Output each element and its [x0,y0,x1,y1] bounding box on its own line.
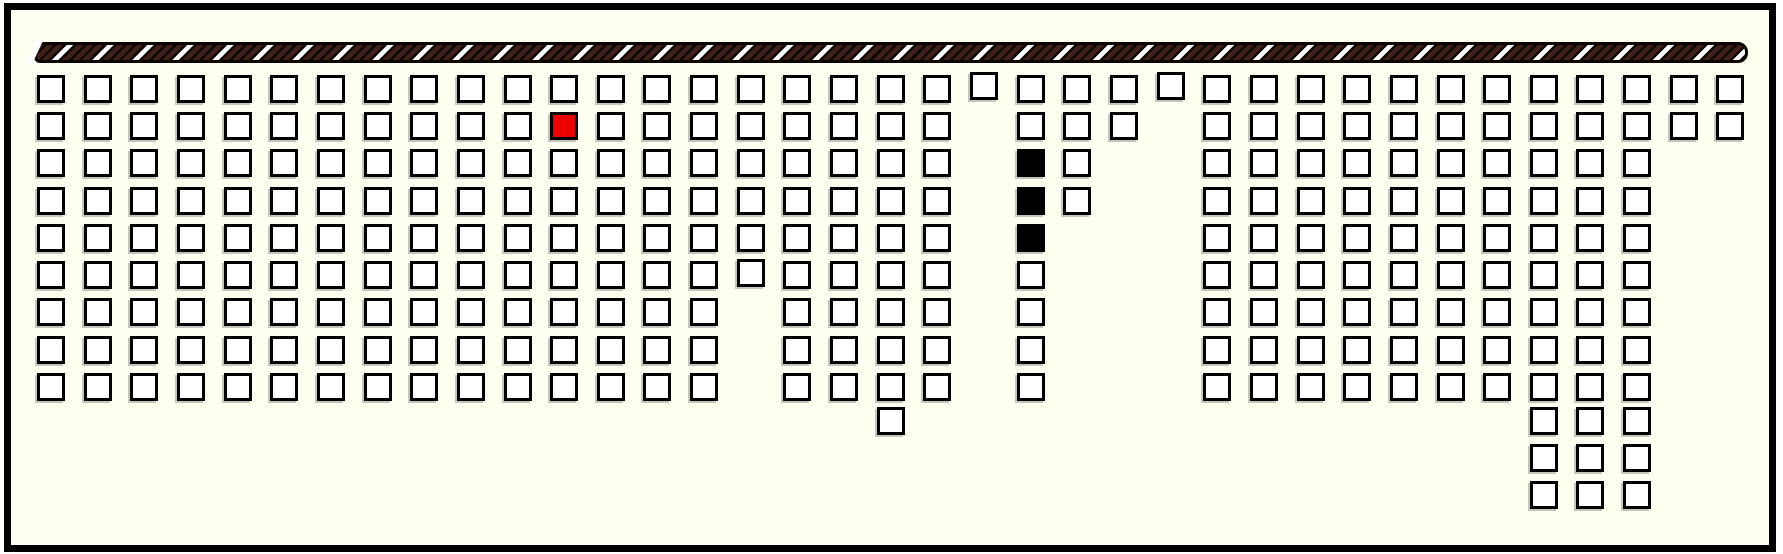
slot-r9-c11[interactable] [504,373,532,401]
slot-r10-c19[interactable] [877,407,905,435]
slot-r4-c33[interactable] [1530,187,1558,215]
slot-r8-c3[interactable] [130,336,158,364]
slot-occupied-r3-c22[interactable] [1017,149,1045,177]
slot-r1-c32[interactable] [1483,75,1511,103]
slot-r9-c6[interactable] [270,373,298,401]
slot-r8-c33[interactable] [1530,336,1558,364]
slot-r9-c14[interactable] [643,373,671,401]
slot-r5-c14[interactable] [643,224,671,252]
slot-r1-c2[interactable] [84,75,112,103]
slot-r8-c1[interactable] [37,336,65,364]
slot-r5-c15[interactable] [690,224,718,252]
slot-r4-c9[interactable] [410,187,438,215]
slot-r6-c7[interactable] [317,261,345,289]
slot-r5-c11[interactable] [504,224,532,252]
slot-r6-c17[interactable] [783,261,811,289]
slot-r9-c32[interactable] [1483,373,1511,401]
slot-r9-c33[interactable] [1530,373,1558,401]
slot-r7-c2[interactable] [84,298,112,326]
slot-r4-c17[interactable] [783,187,811,215]
slot-r4-c35[interactable] [1623,187,1651,215]
slot-r1-c34[interactable] [1576,75,1604,103]
slot-r4-c14[interactable] [643,187,671,215]
slot-r4-c19[interactable] [877,187,905,215]
slot-r6-c15[interactable] [690,261,718,289]
slot-r5-c18[interactable] [830,224,858,252]
slot-r8-c29[interactable] [1343,336,1371,364]
slot-r8-c6[interactable] [270,336,298,364]
slot-r1-c28[interactable] [1297,75,1325,103]
slot-r5-c32[interactable] [1483,224,1511,252]
slot-r4-c7[interactable] [317,187,345,215]
slot-r8-c14[interactable] [643,336,671,364]
slot-r5-c20[interactable] [923,224,951,252]
slot-r12-c34[interactable] [1576,481,1604,509]
slot-r4-c10[interactable] [457,187,485,215]
slot-r4-c12[interactable] [550,187,578,215]
slot-r7-c10[interactable] [457,298,485,326]
slot-r3-c29[interactable] [1343,149,1371,177]
slot-r1-c13[interactable] [597,75,625,103]
slot-r5-c27[interactable] [1250,224,1278,252]
slot-r2-c36[interactable] [1670,112,1698,140]
slot-r2-c7[interactable] [317,112,345,140]
slot-r9-c17[interactable] [783,373,811,401]
slot-r4-c8[interactable] [364,187,392,215]
slot-r5-c2[interactable] [84,224,112,252]
slot-r2-c30[interactable] [1390,112,1418,140]
slot-r5-c26[interactable] [1203,224,1231,252]
slot-r8-c9[interactable] [410,336,438,364]
slot-r2-c14[interactable] [643,112,671,140]
slot-r3-c28[interactable] [1297,149,1325,177]
slot-r5-c1[interactable] [37,224,65,252]
slot-r2-c35[interactable] [1623,112,1651,140]
slot-r8-c13[interactable] [597,336,625,364]
slot-r2-c19[interactable] [877,112,905,140]
slot-r2-c1[interactable] [37,112,65,140]
slot-r8-c26[interactable] [1203,336,1231,364]
slot-r6-c14[interactable] [643,261,671,289]
slot-r1-c4[interactable] [177,75,205,103]
slot-r4-c29[interactable] [1343,187,1371,215]
slot-r6-c18[interactable] [830,261,858,289]
slot-r2-c32[interactable] [1483,112,1511,140]
slot-r4-c28[interactable] [1297,187,1325,215]
slot-r4-c34[interactable] [1576,187,1604,215]
slot-r7-c6[interactable] [270,298,298,326]
slot-r5-c17[interactable] [783,224,811,252]
slot-r1-c31[interactable] [1437,75,1465,103]
slot-r5-c3[interactable] [130,224,158,252]
slot-r2-c5[interactable] [224,112,252,140]
slot-r9-c10[interactable] [457,373,485,401]
slot-r1-c9[interactable] [410,75,438,103]
slot-r6-c33[interactable] [1530,261,1558,289]
slot-r5-c29[interactable] [1343,224,1371,252]
slot-r4-c30[interactable] [1390,187,1418,215]
slot-r6-c2[interactable] [84,261,112,289]
slot-r1-c27[interactable] [1250,75,1278,103]
slot-r1-c23[interactable] [1063,75,1091,103]
slot-r7-c7[interactable] [317,298,345,326]
slot-r2-c20[interactable] [923,112,951,140]
slot-r1-c21[interactable] [970,72,998,100]
slot-r6-c30[interactable] [1390,261,1418,289]
slot-r2-c11[interactable] [504,112,532,140]
slot-r9-c29[interactable] [1343,373,1371,401]
slot-r6-c22[interactable] [1017,261,1045,289]
slot-r8-c28[interactable] [1297,336,1325,364]
slot-r9-c5[interactable] [224,373,252,401]
slot-r3-c6[interactable] [270,149,298,177]
slot-r3-c27[interactable] [1250,149,1278,177]
slot-r3-c16[interactable] [737,149,765,177]
slot-r7-c5[interactable] [224,298,252,326]
slot-r3-c17[interactable] [783,149,811,177]
slot-r2-c23[interactable] [1063,112,1091,140]
slot-r9-c26[interactable] [1203,373,1231,401]
slot-r7-c4[interactable] [177,298,205,326]
slot-r7-c33[interactable] [1530,298,1558,326]
slot-r5-c28[interactable] [1297,224,1325,252]
slot-r7-c3[interactable] [130,298,158,326]
slot-r6-c9[interactable] [410,261,438,289]
slot-r10-c35[interactable] [1623,407,1651,435]
slot-r9-c9[interactable] [410,373,438,401]
slot-r2-c15[interactable] [690,112,718,140]
slot-r1-c16[interactable] [737,75,765,103]
slot-r3-c23[interactable] [1063,149,1091,177]
slot-selected[interactable] [550,112,578,140]
slot-r4-c2[interactable] [84,187,112,215]
slot-grid [0,0,1783,554]
slot-r8-c12[interactable] [550,336,578,364]
slot-r3-c11[interactable] [504,149,532,177]
slot-r9-c8[interactable] [364,373,392,401]
slot-r10-c33[interactable] [1530,407,1558,435]
slot-r4-c26[interactable] [1203,187,1231,215]
slot-r3-c1[interactable] [37,149,65,177]
slot-r5-c7[interactable] [317,224,345,252]
slot-r1-c14[interactable] [643,75,671,103]
slot-r6-c27[interactable] [1250,261,1278,289]
slot-r9-c3[interactable] [130,373,158,401]
slot-r3-c20[interactable] [923,149,951,177]
slot-r1-c6[interactable] [270,75,298,103]
slot-r2-c37[interactable] [1716,112,1744,140]
slot-r7-c14[interactable] [643,298,671,326]
slot-r1-c1[interactable] [37,75,65,103]
slot-r2-c13[interactable] [597,112,625,140]
slot-r8-c31[interactable] [1437,336,1465,364]
slot-r2-c16[interactable] [737,112,765,140]
slot-r8-c20[interactable] [923,336,951,364]
slot-r2-c24[interactable] [1110,112,1138,140]
slot-r8-c5[interactable] [224,336,252,364]
slot-r6-c12[interactable] [550,261,578,289]
slot-r7-c34[interactable] [1576,298,1604,326]
slot-r8-c35[interactable] [1623,336,1651,364]
slot-r8-c30[interactable] [1390,336,1418,364]
slot-r1-c22[interactable] [1017,75,1045,103]
slot-r11-c34[interactable] [1576,444,1604,472]
slot-r1-c26[interactable] [1203,75,1231,103]
slot-r9-c15[interactable] [690,373,718,401]
slot-r5-c13[interactable] [597,224,625,252]
slot-r6-c20[interactable] [923,261,951,289]
slot-r3-c31[interactable] [1437,149,1465,177]
slot-r7-c18[interactable] [830,298,858,326]
slot-r4-c3[interactable] [130,187,158,215]
slot-r6-c28[interactable] [1297,261,1325,289]
slot-r4-c5[interactable] [224,187,252,215]
slot-r9-c1[interactable] [37,373,65,401]
slot-r9-c35[interactable] [1623,373,1651,401]
slot-r4-c13[interactable] [597,187,625,215]
slot-r1-c36[interactable] [1670,75,1698,103]
slot-r4-c11[interactable] [504,187,532,215]
slot-r9-c13[interactable] [597,373,625,401]
slot-r3-c12[interactable] [550,149,578,177]
slot-r1-c12[interactable] [550,75,578,103]
slot-r2-c27[interactable] [1250,112,1278,140]
slot-r9-c22[interactable] [1017,373,1045,401]
slot-r8-c4[interactable] [177,336,205,364]
slot-r2-c3[interactable] [130,112,158,140]
slot-r5-c4[interactable] [177,224,205,252]
slot-r9-c18[interactable] [830,373,858,401]
slot-r5-c16[interactable] [737,224,765,252]
slot-r5-c8[interactable] [364,224,392,252]
slot-r3-c15[interactable] [690,149,718,177]
slot-r7-c19[interactable] [877,298,905,326]
slot-occupied-r5-c22[interactable] [1017,224,1045,252]
slot-r3-c9[interactable] [410,149,438,177]
slot-r5-c31[interactable] [1437,224,1465,252]
slot-r6-c35[interactable] [1623,261,1651,289]
slot-r9-c12[interactable] [550,373,578,401]
slot-r9-c27[interactable] [1250,373,1278,401]
slot-r9-c34[interactable] [1576,373,1604,401]
slot-r5-c33[interactable] [1530,224,1558,252]
slot-r1-c18[interactable] [830,75,858,103]
slot-r5-c9[interactable] [410,224,438,252]
slot-r3-c4[interactable] [177,149,205,177]
slot-r7-c32[interactable] [1483,298,1511,326]
slot-r9-c19[interactable] [877,373,905,401]
slot-r4-c20[interactable] [923,187,951,215]
slot-r6-c11[interactable] [504,261,532,289]
slot-r5-c5[interactable] [224,224,252,252]
slot-r7-c17[interactable] [783,298,811,326]
slot-r7-c20[interactable] [923,298,951,326]
slot-r8-c10[interactable] [457,336,485,364]
slot-r6-c4[interactable] [177,261,205,289]
slot-r7-c13[interactable] [597,298,625,326]
slot-r9-c4[interactable] [177,373,205,401]
slot-r2-c9[interactable] [410,112,438,140]
slot-r9-c2[interactable] [84,373,112,401]
slot-r5-c30[interactable] [1390,224,1418,252]
slot-r7-c11[interactable] [504,298,532,326]
slot-r7-c29[interactable] [1343,298,1371,326]
slot-r2-c8[interactable] [364,112,392,140]
slot-r1-c19[interactable] [877,75,905,103]
slot-r8-c19[interactable] [877,336,905,364]
slot-r7-c35[interactable] [1623,298,1651,326]
slot-r11-c35[interactable] [1623,444,1651,472]
slot-r1-c17[interactable] [783,75,811,103]
slot-r2-c34[interactable] [1576,112,1604,140]
slot-r8-c15[interactable] [690,336,718,364]
slot-r6-c26[interactable] [1203,261,1231,289]
slot-r1-c33[interactable] [1530,75,1558,103]
slot-r3-c5[interactable] [224,149,252,177]
slot-r5-c6[interactable] [270,224,298,252]
slot-r2-c22[interactable] [1017,112,1045,140]
slot-r1-c25[interactable] [1157,72,1185,100]
slot-r1-c8[interactable] [364,75,392,103]
slot-r4-c18[interactable] [830,187,858,215]
slot-r3-c2[interactable] [84,149,112,177]
slot-r9-c28[interactable] [1297,373,1325,401]
slot-r4-c23[interactable] [1063,187,1091,215]
slot-r2-c33[interactable] [1530,112,1558,140]
slot-r1-c20[interactable] [923,75,951,103]
slot-r4-c15[interactable] [690,187,718,215]
stage [0,0,1783,554]
slot-r7-c12[interactable] [550,298,578,326]
slot-r12-c33[interactable] [1530,481,1558,509]
slot-r11-c33[interactable] [1530,444,1558,472]
slot-r1-c24[interactable] [1110,75,1138,103]
slot-r9-c31[interactable] [1437,373,1465,401]
slot-r12-c35[interactable] [1623,481,1651,509]
slot-r3-c3[interactable] [130,149,158,177]
slot-r6-c32[interactable] [1483,261,1511,289]
slot-r4-c16[interactable] [737,187,765,215]
slot-r3-c14[interactable] [643,149,671,177]
slot-r8-c8[interactable] [364,336,392,364]
slot-r8-c27[interactable] [1250,336,1278,364]
slot-r9-c30[interactable] [1390,373,1418,401]
slot-r4-c27[interactable] [1250,187,1278,215]
slot-r5-c10[interactable] [457,224,485,252]
slot-r2-c17[interactable] [783,112,811,140]
slot-r8-c2[interactable] [84,336,112,364]
slot-r3-c35[interactable] [1623,149,1651,177]
slot-r6-c31[interactable] [1437,261,1465,289]
slot-r1-c5[interactable] [224,75,252,103]
slot-r1-c29[interactable] [1343,75,1371,103]
slot-r5-c35[interactable] [1623,224,1651,252]
slot-r7-c31[interactable] [1437,298,1465,326]
slot-r3-c30[interactable] [1390,149,1418,177]
slot-r7-c22[interactable] [1017,298,1045,326]
slot-r1-c37[interactable] [1716,75,1744,103]
slot-r4-c32[interactable] [1483,187,1511,215]
slot-r7-c26[interactable] [1203,298,1231,326]
slot-r3-c33[interactable] [1530,149,1558,177]
slot-r7-c15[interactable] [690,298,718,326]
slot-r2-c2[interactable] [84,112,112,140]
slot-r9-c7[interactable] [317,373,345,401]
slot-r10-c34[interactable] [1576,407,1604,435]
slot-r1-c35[interactable] [1623,75,1651,103]
slot-r3-c19[interactable] [877,149,905,177]
slot-r4-c4[interactable] [177,187,205,215]
slot-r5-c12[interactable] [550,224,578,252]
slot-r2-c6[interactable] [270,112,298,140]
slot-r6-c8[interactable] [364,261,392,289]
slot-r2-c4[interactable] [177,112,205,140]
slot-r7-c1[interactable] [37,298,65,326]
slot-r7-c28[interactable] [1297,298,1325,326]
slot-r8-c11[interactable] [504,336,532,364]
slot-r8-c22[interactable] [1017,336,1045,364]
slot-r6-c29[interactable] [1343,261,1371,289]
slot-r6-c10[interactable] [457,261,485,289]
slot-r6-c3[interactable] [130,261,158,289]
slot-r2-c26[interactable] [1203,112,1231,140]
slot-r1-c30[interactable] [1390,75,1418,103]
slot-r3-c32[interactable] [1483,149,1511,177]
slot-r6-c1[interactable] [37,261,65,289]
slot-r1-c11[interactable] [504,75,532,103]
slot-r1-c7[interactable] [317,75,345,103]
slot-r6-c6[interactable] [270,261,298,289]
slot-r8-c18[interactable] [830,336,858,364]
slot-r1-c15[interactable] [690,75,718,103]
slot-r8-c17[interactable] [783,336,811,364]
slot-r2-c31[interactable] [1437,112,1465,140]
slot-r6-c34[interactable] [1576,261,1604,289]
slot-r7-c27[interactable] [1250,298,1278,326]
slot-r2-c28[interactable] [1297,112,1325,140]
slot-r6-c5[interactable] [224,261,252,289]
slot-r7-c8[interactable] [364,298,392,326]
slot-r7-c9[interactable] [410,298,438,326]
slot-r3-c13[interactable] [597,149,625,177]
slot-r6-c19[interactable] [877,261,905,289]
slot-r6-c16[interactable] [737,259,765,287]
slot-r1-c3[interactable] [130,75,158,103]
slot-r1-c10[interactable] [457,75,485,103]
slot-r6-c13[interactable] [597,261,625,289]
slot-r4-c31[interactable] [1437,187,1465,215]
slot-r5-c34[interactable] [1576,224,1604,252]
slot-r7-c30[interactable] [1390,298,1418,326]
slot-r2-c10[interactable] [457,112,485,140]
slot-r3-c8[interactable] [364,149,392,177]
slot-r8-c32[interactable] [1483,336,1511,364]
slot-r3-c26[interactable] [1203,149,1231,177]
slot-r5-c19[interactable] [877,224,905,252]
slot-r8-c7[interactable] [317,336,345,364]
slot-r9-c20[interactable] [923,373,951,401]
slot-r3-c7[interactable] [317,149,345,177]
slot-r3-c10[interactable] [457,149,485,177]
slot-r4-c1[interactable] [37,187,65,215]
slot-r3-c18[interactable] [830,149,858,177]
slot-r4-c6[interactable] [270,187,298,215]
slot-r2-c29[interactable] [1343,112,1371,140]
slot-occupied-r4-c22[interactable] [1017,187,1045,215]
slot-r8-c34[interactable] [1576,336,1604,364]
slot-r2-c18[interactable] [830,112,858,140]
slot-r3-c34[interactable] [1576,149,1604,177]
